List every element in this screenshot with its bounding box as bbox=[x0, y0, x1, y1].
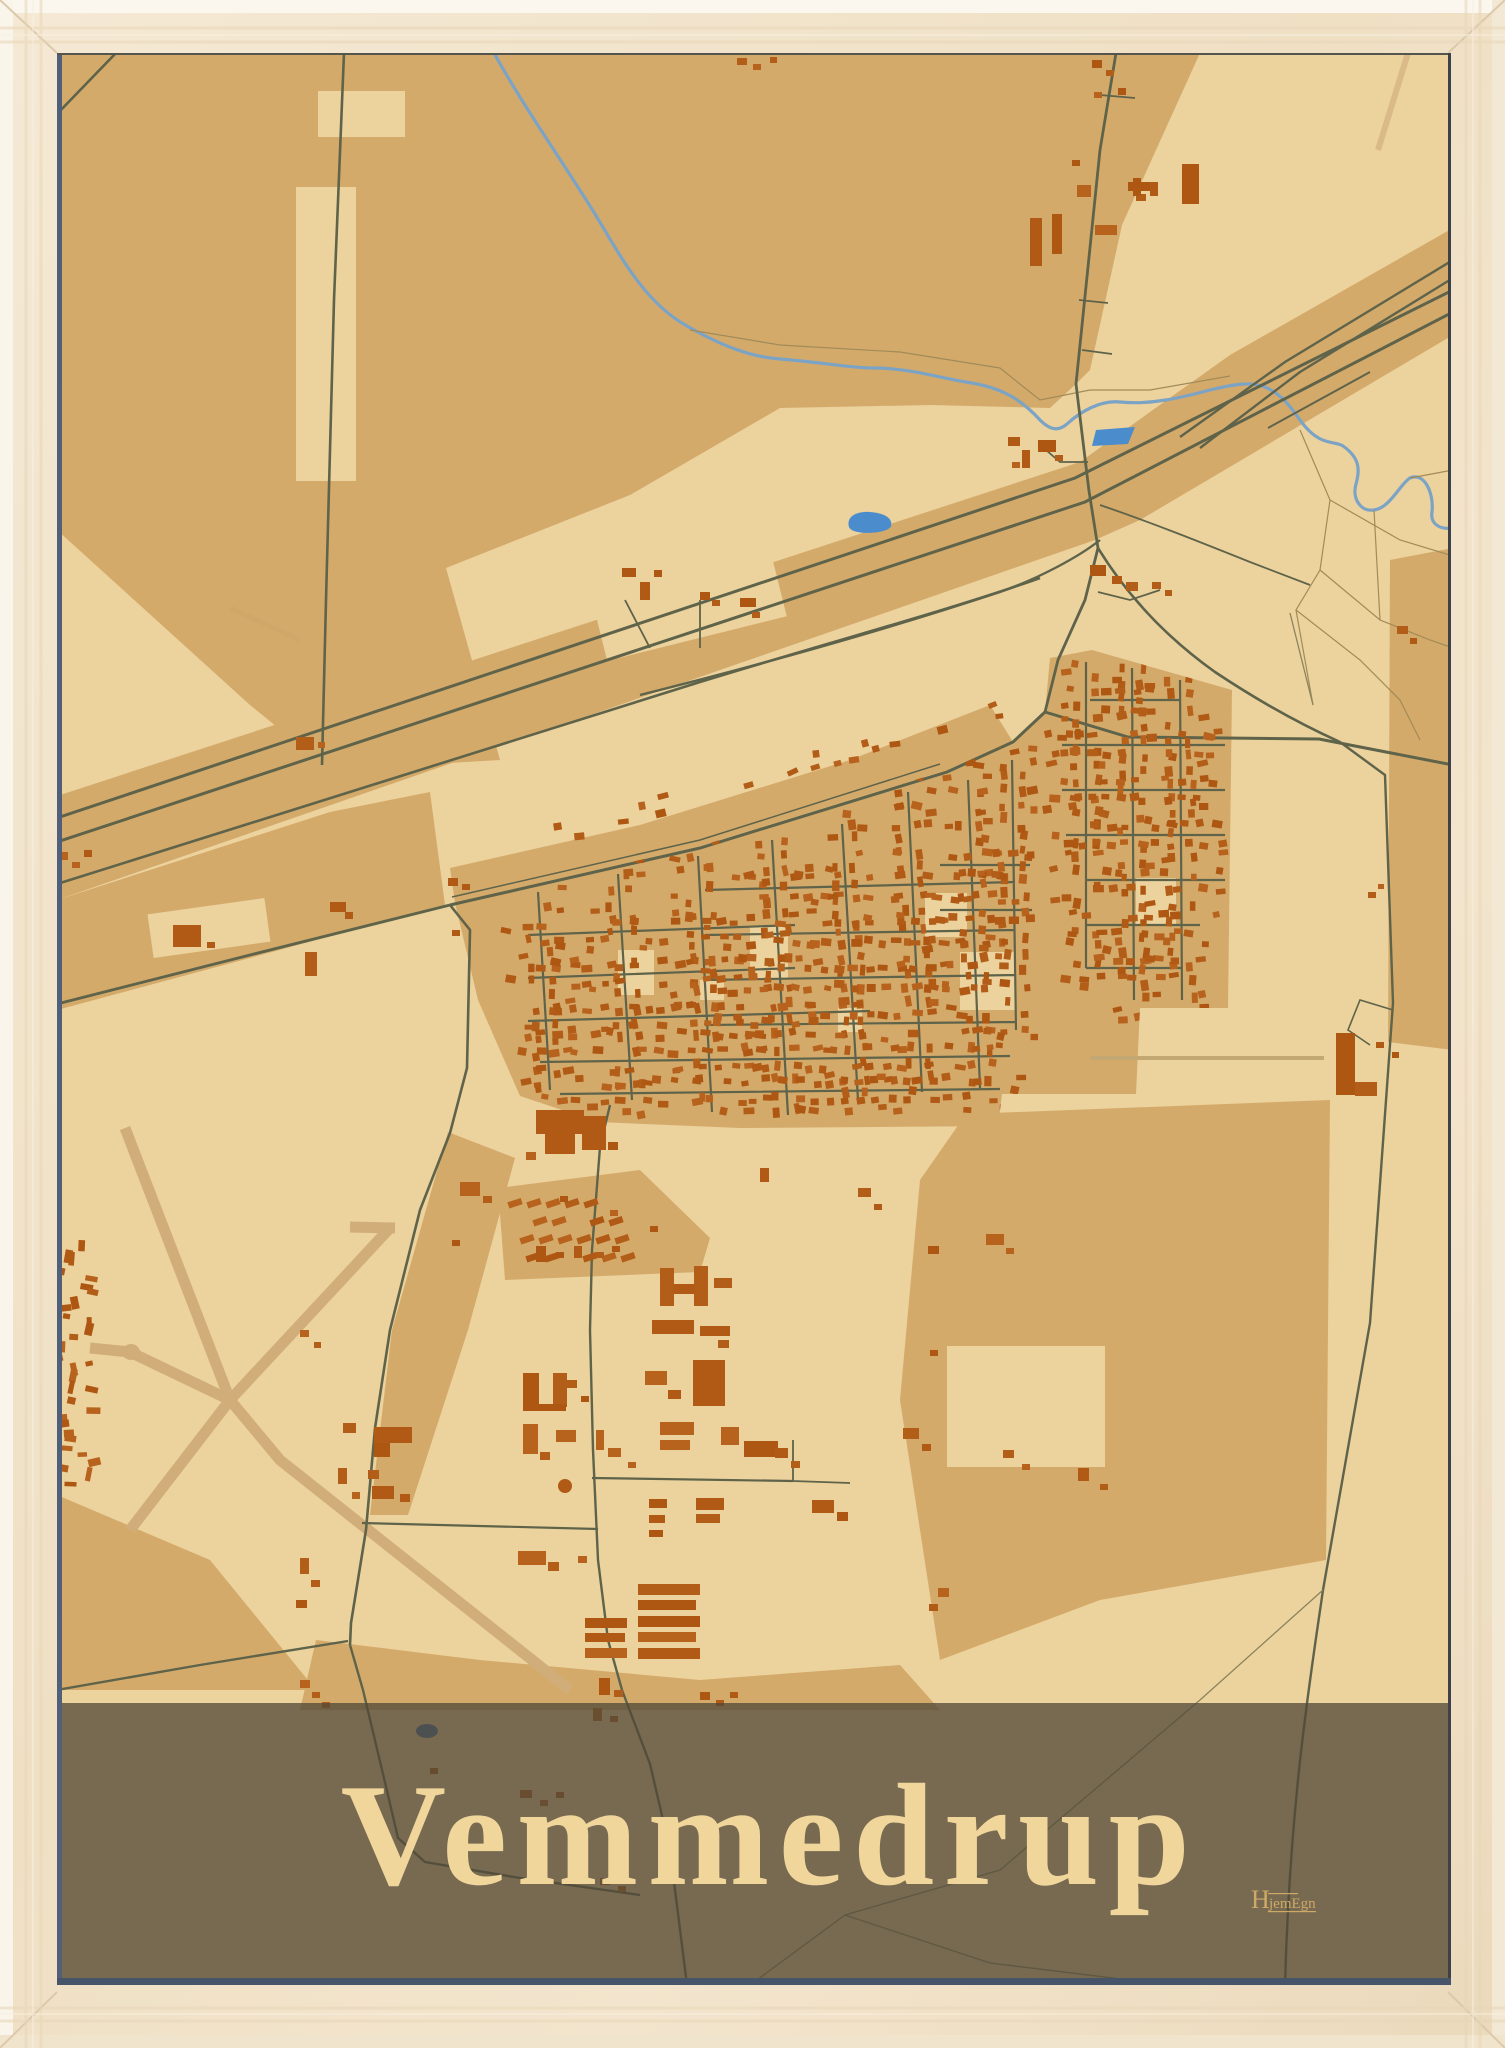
svg-text:H: H bbox=[1251, 1885, 1270, 1914]
svg-text:jemEgn: jemEgn bbox=[1268, 1896, 1316, 1912]
svg-text:Vemmedrup: Vemmedrup bbox=[341, 1754, 1200, 1916]
